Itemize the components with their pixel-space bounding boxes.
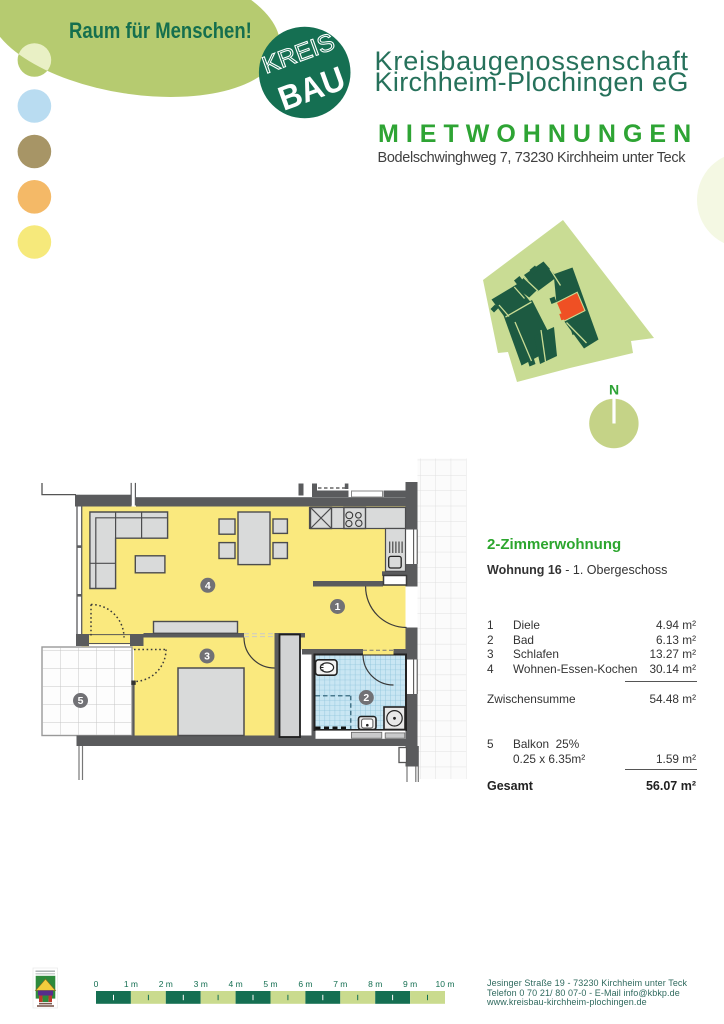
- svg-text:10 m: 10 m: [436, 979, 455, 989]
- svg-text:8 m: 8 m: [368, 979, 382, 989]
- svg-text:2: 2: [363, 692, 369, 704]
- svg-text:5: 5: [78, 695, 84, 707]
- svg-text:5 m: 5 m: [263, 979, 277, 989]
- svg-text:0: 0: [94, 979, 99, 989]
- svg-text:1 m: 1 m: [124, 979, 138, 989]
- svg-text:2 m: 2 m: [159, 979, 173, 989]
- svg-text:9 m: 9 m: [403, 979, 417, 989]
- svg-text:3: 3: [204, 651, 210, 663]
- svg-text:1: 1: [335, 601, 341, 613]
- svg-text:7 m: 7 m: [333, 979, 347, 989]
- svg-text:3 m: 3 m: [194, 979, 208, 989]
- svg-text:N: N: [609, 382, 619, 398]
- svg-text:4: 4: [205, 580, 211, 592]
- svg-text:6 m: 6 m: [298, 979, 312, 989]
- svg-text:4 m: 4 m: [229, 979, 243, 989]
